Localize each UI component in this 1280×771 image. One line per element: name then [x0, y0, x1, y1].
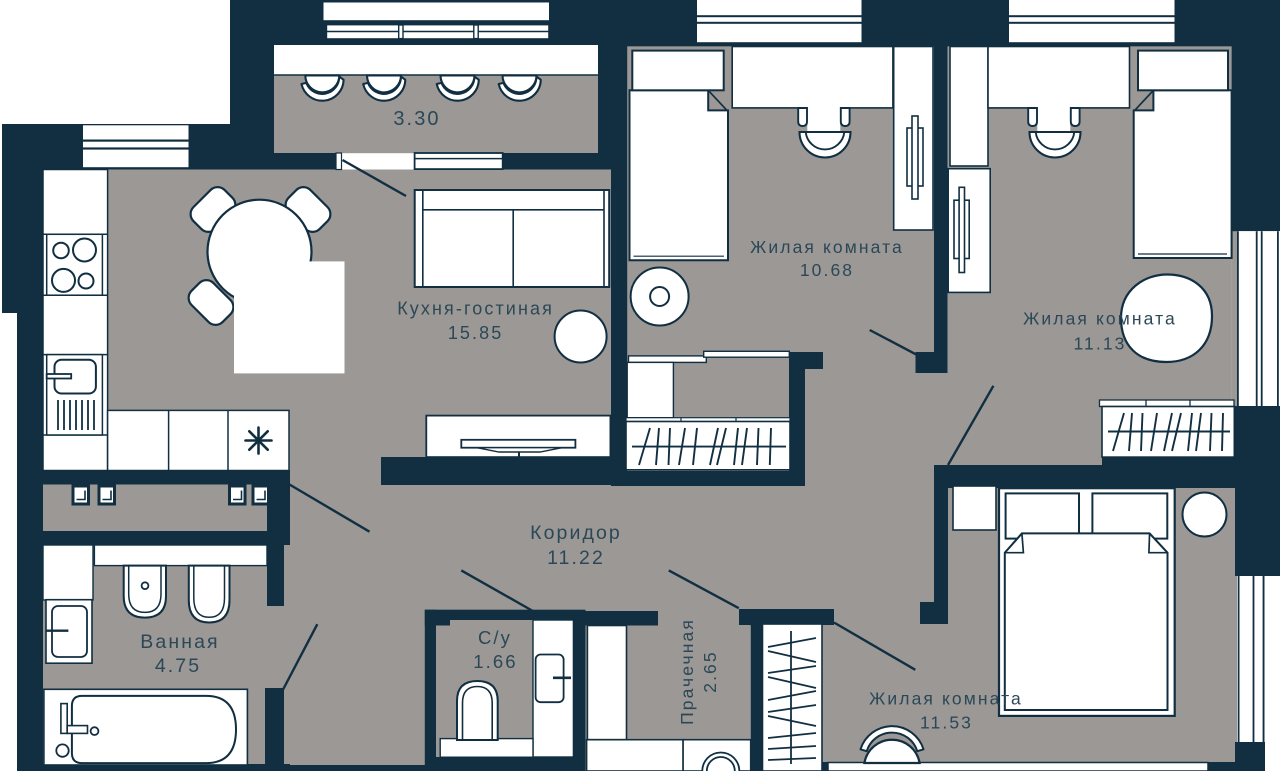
svg-text:Ванная: Ванная	[140, 631, 219, 653]
svg-text:3.30: 3.30	[393, 108, 440, 130]
svg-text:15.85: 15.85	[448, 323, 504, 343]
svg-text:С/у: С/у	[478, 627, 512, 648]
svg-text:11.13: 11.13	[1074, 334, 1127, 354]
svg-text:10.68: 10.68	[800, 260, 854, 280]
svg-text:Жилая комната: Жилая комната	[1023, 309, 1177, 329]
svg-text:Жилая комната: Жилая комната	[869, 689, 1023, 709]
svg-text:2.65: 2.65	[700, 650, 720, 692]
svg-text:4.75: 4.75	[155, 655, 201, 677]
svg-text:11.22: 11.22	[547, 547, 605, 569]
svg-text:Прачечная: Прачечная	[677, 618, 697, 725]
svg-text:Коридор: Коридор	[530, 522, 622, 544]
svg-text:11.53: 11.53	[920, 713, 973, 733]
svg-text:1.66: 1.66	[473, 651, 517, 672]
svg-text:Кухня-гостиная: Кухня-гостиная	[397, 299, 554, 319]
svg-text:Жилая комната: Жилая комната	[750, 237, 904, 257]
